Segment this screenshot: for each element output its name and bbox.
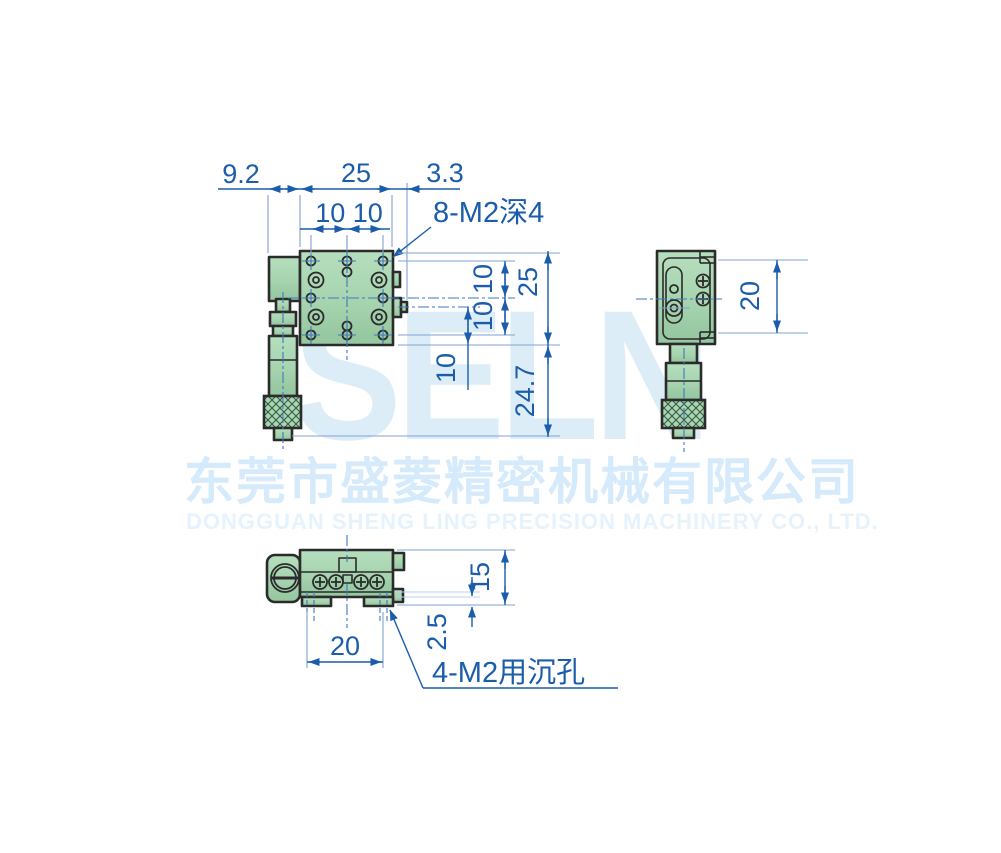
dim-height-bottom: 15: [465, 562, 495, 592]
bottom-view: 15 2.5 20 4-M2用沉孔: [267, 535, 618, 689]
dim-foot-offset: 2.5: [422, 613, 452, 651]
phillips-screw: [697, 275, 710, 288]
technical-drawing: 9.2 25 3.3 10 10 8-M2深4: [0, 0, 1001, 853]
dim-inner: 10: [431, 353, 461, 383]
phillips-screw: [354, 575, 368, 589]
side-view: 20: [636, 251, 808, 452]
dim-width-plate: 25: [341, 158, 371, 188]
cbore-label: 4-M2用沉孔: [432, 656, 585, 689]
phillips-screw: [370, 575, 384, 589]
dim-height-micrometer: 24.7: [510, 365, 540, 418]
phillips-screw: [329, 575, 343, 589]
dim-row-lower: 10: [468, 301, 498, 331]
dim-height-plate: 25: [513, 267, 543, 297]
dim-mount-spacing-bottom: 20: [330, 631, 360, 661]
dim-width-left: 9.2: [222, 159, 260, 189]
dim-hole-spacing-top: 10 10: [315, 198, 383, 228]
dim-mount-spacing-side: 20: [735, 281, 765, 311]
thread-label: 8-M2深4: [433, 197, 544, 229]
front-view: 9.2 25 3.3 10 10 8-M2深4: [218, 158, 560, 452]
side-dimensions: 20: [718, 260, 808, 333]
dim-width-right: 3.3: [426, 158, 464, 188]
phillips-screw: [313, 575, 327, 589]
bottom-body: [267, 550, 404, 606]
side-body: [657, 251, 715, 344]
drawing-canvas: SELN 东莞市盛菱精密机械有限公司 DONGGUAN SHENG LING P…: [0, 0, 1001, 853]
dim-row-upper: 10: [468, 264, 498, 294]
